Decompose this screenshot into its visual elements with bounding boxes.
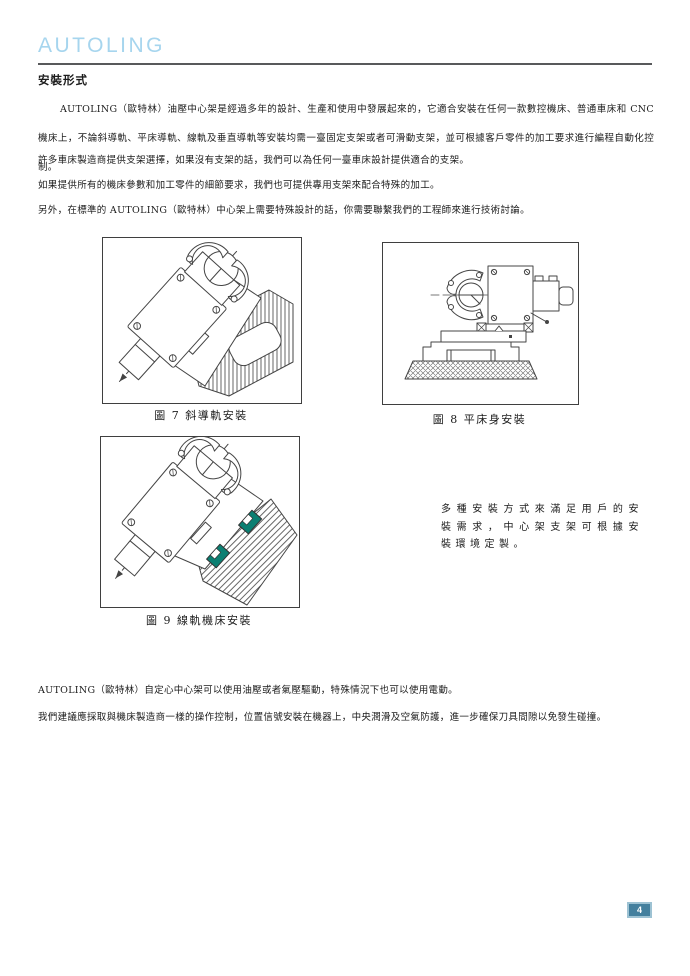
- document-page: AUTOLING 安裝形式 AUTOLING（歐特林）油壓中心架是經過多年的設計…: [0, 0, 690, 976]
- header-rule: [38, 63, 652, 65]
- figure-7-box: [102, 237, 302, 404]
- paragraph-support-options: 許多車床製造商提供支架選擇，如果沒有支架的話，我們可以為任何一臺車床設計提供適合…: [38, 154, 469, 168]
- page-number-badge: 4: [627, 902, 652, 918]
- figure-8-box: [382, 242, 579, 405]
- paragraph-operation-advice: 我們建議應採取與機床製造商一樣的操作控制，位置信號安裝在機器上，中央潤滑及空氣防…: [38, 711, 606, 725]
- slant-rail-mount-drawing: [103, 238, 301, 403]
- figure-9-caption: 圖 9 線軌機床安裝: [100, 612, 298, 628]
- brand-logo: AUTOLING: [38, 34, 165, 58]
- paragraph-custom-bracket: 如果提供所有的機床參數和加工零件的細節要求，我們也可提供專用支架來配合特殊的加工…: [38, 179, 440, 193]
- side-note: 多種安裝方式來滿足用戶的安裝需求，中心架支架可根據安裝環境定製。: [441, 501, 643, 554]
- figure-7-caption: 圖 7 斜導軌安裝: [102, 407, 300, 423]
- figure-9-box: [100, 436, 300, 608]
- section-title: 安裝形式: [38, 72, 88, 88]
- paragraph-intro: AUTOLING（歐特林）油壓中心架是經過多年的設計、生產和使用中發展起來的，它…: [38, 95, 654, 182]
- flat-bed-mount-drawing: [383, 243, 578, 404]
- figure-8-caption: 圖 8 平床身安裝: [382, 411, 577, 427]
- paragraph-engineer-contact: 另外，在標準的 AUTOLING（歐特林）中心架上需要特殊設計的話，你需要聯繫我…: [38, 204, 530, 218]
- linear-rail-mount-drawing: [101, 437, 299, 607]
- paragraph-drive-options: AUTOLING（歐特林）自定心中心架可以使用油壓或者氣壓驅動，特殊情況下也可以…: [38, 684, 458, 698]
